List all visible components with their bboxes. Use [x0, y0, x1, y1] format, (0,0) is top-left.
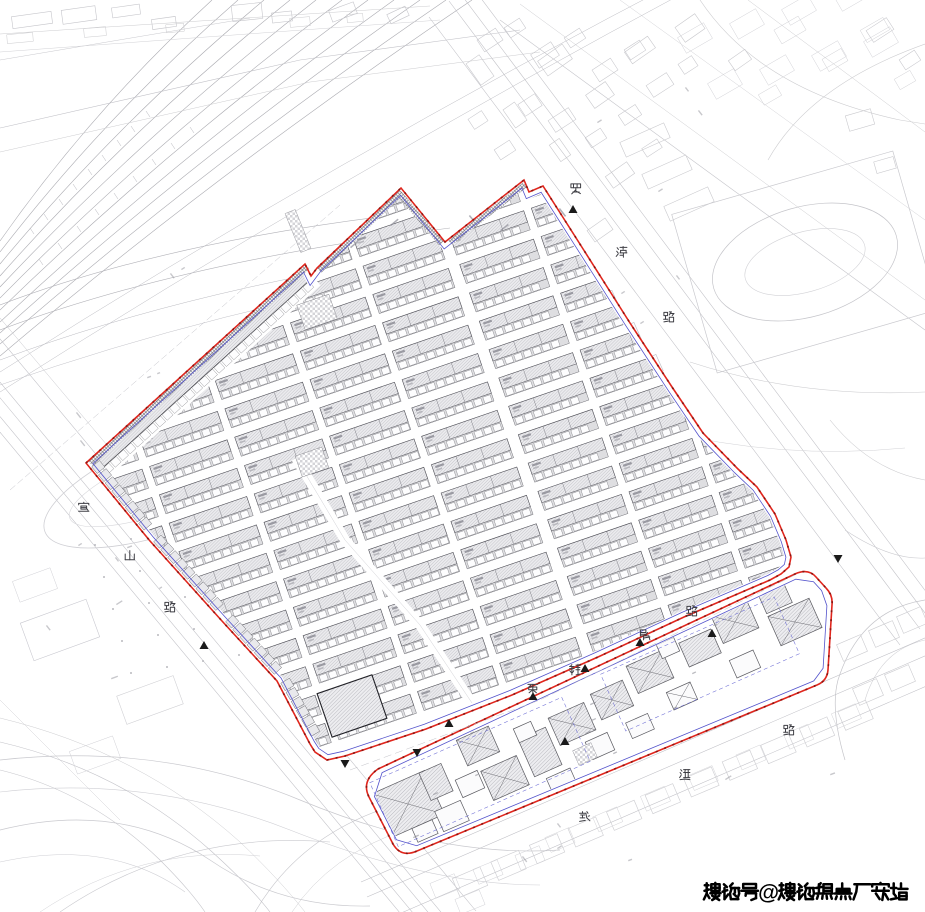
svg-text:@: @	[758, 881, 779, 905]
